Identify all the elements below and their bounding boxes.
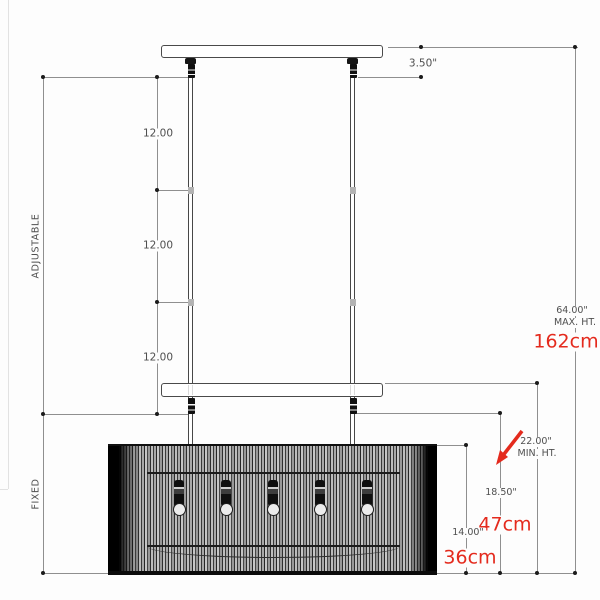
dim-dot bbox=[155, 412, 159, 416]
dim-dot bbox=[535, 381, 539, 385]
dim-label-min-drop: 18.50" bbox=[483, 488, 519, 498]
lamp-socket bbox=[315, 480, 325, 505]
dim-dot bbox=[573, 45, 577, 49]
metric-max-height: 162cm bbox=[531, 333, 600, 352]
dim-dot bbox=[498, 571, 502, 575]
dim-dot bbox=[419, 45, 423, 49]
rod-through-bar bbox=[188, 385, 193, 395]
lamp-socket bbox=[268, 480, 278, 505]
shade-stem-fitting bbox=[188, 398, 195, 414]
dim-dot bbox=[419, 75, 423, 79]
ceiling-canopy bbox=[161, 45, 383, 58]
hang-straight-stem bbox=[188, 64, 195, 78]
dim-dot bbox=[573, 571, 577, 575]
dim-tick bbox=[157, 190, 189, 191]
dim-dot bbox=[155, 300, 159, 304]
dim-dot bbox=[464, 571, 468, 575]
dim-dot bbox=[155, 188, 159, 192]
dim-dot bbox=[498, 411, 502, 415]
page-edge-line bbox=[8, 0, 9, 489]
dim-line bbox=[43, 77, 188, 78]
rod-coupling bbox=[350, 299, 356, 306]
dim-line-adjustable-fixed bbox=[43, 77, 44, 573]
dim-label-rod-segment-3: 12.00 bbox=[141, 352, 175, 363]
dim-line-min-height bbox=[537, 383, 538, 573]
dim-line bbox=[43, 414, 189, 415]
fixed-label: FIXED bbox=[31, 478, 42, 509]
dim-caption-max-height: MAX. HT. bbox=[552, 318, 598, 328]
page-edge-corner bbox=[0, 489, 8, 490]
light-bulb bbox=[173, 503, 186, 516]
light-bulb bbox=[314, 503, 327, 516]
dim-tick bbox=[437, 445, 467, 446]
light-bulb bbox=[267, 503, 280, 516]
drum-shade bbox=[108, 444, 437, 575]
dim-label-rod-segment-2: 12.00 bbox=[141, 240, 175, 251]
red-arrow-icon bbox=[488, 424, 532, 472]
metric-shade-height: 36cm bbox=[441, 549, 498, 568]
dim-dot bbox=[155, 75, 159, 79]
dim-tick bbox=[385, 383, 537, 384]
dim-label-canopy-offset: 3.50" bbox=[407, 58, 439, 69]
rod-coupling bbox=[188, 299, 194, 306]
light-bulb bbox=[220, 503, 233, 516]
rod-through-bar bbox=[350, 385, 355, 395]
hang-straight-stem bbox=[350, 64, 357, 78]
dim-dot bbox=[41, 75, 45, 79]
dim-dot bbox=[535, 571, 539, 575]
dim-dot bbox=[41, 412, 45, 416]
dim-label-max-height: 64.00" bbox=[554, 306, 590, 316]
lamp-socket bbox=[174, 480, 184, 505]
lamp-socket bbox=[362, 480, 372, 505]
dim-label-rod-segment-1: 12.00 bbox=[141, 128, 175, 139]
dim-tick bbox=[157, 302, 189, 303]
dim-tick bbox=[356, 413, 500, 414]
dim-tick bbox=[358, 77, 422, 78]
dim-dot bbox=[464, 443, 468, 447]
light-bulb bbox=[361, 503, 374, 516]
rod-coupling bbox=[350, 187, 356, 194]
dim-dot bbox=[41, 571, 45, 575]
shade-stem-fitting bbox=[350, 398, 357, 414]
dim-label-shade-height: 14.00" bbox=[450, 528, 486, 538]
adjustable-label: ADJUSTABLE bbox=[31, 214, 42, 279]
fixture-drawing: ADJUSTABLE FIXED 12.00 12.00 12.00 3.50"… bbox=[0, 0, 600, 600]
lamp-socket bbox=[221, 480, 231, 505]
rod-coupling bbox=[188, 187, 194, 194]
shade-frame-top bbox=[147, 472, 400, 474]
dim-line bbox=[388, 47, 578, 48]
shade-bottom-rim bbox=[147, 545, 400, 558]
